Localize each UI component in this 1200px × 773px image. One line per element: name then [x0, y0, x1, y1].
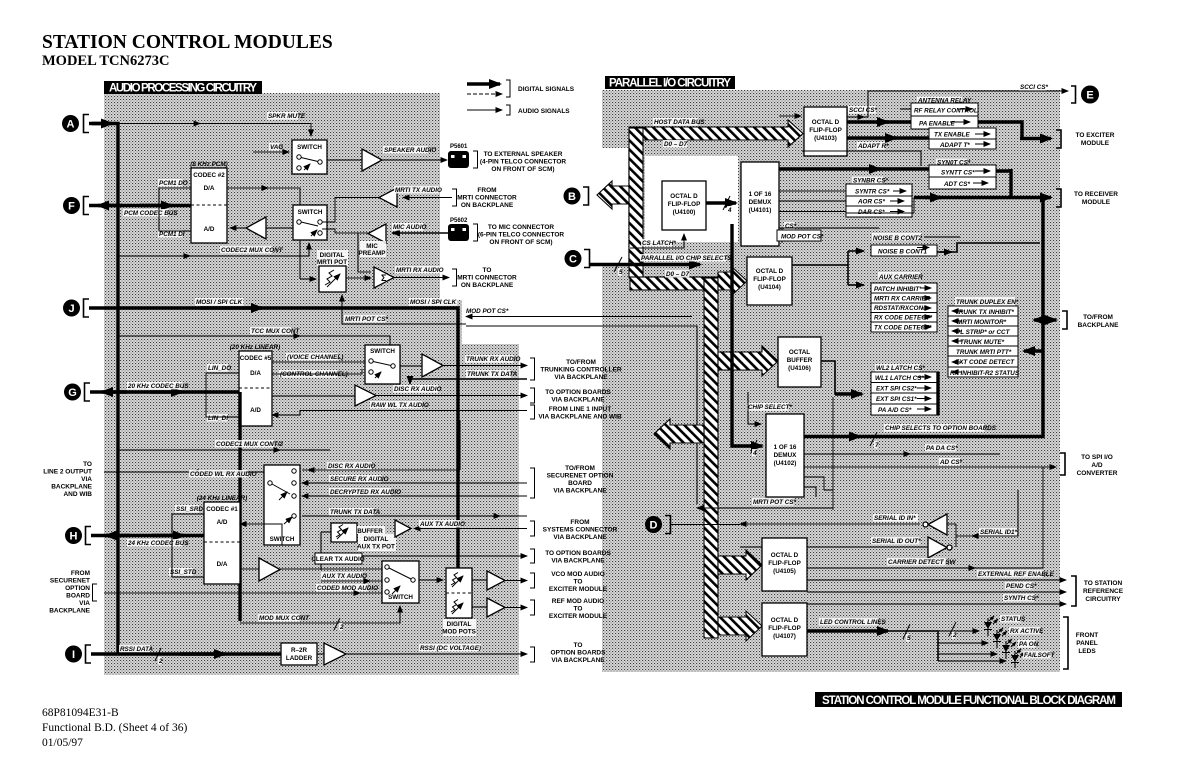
- svg-text:SPEAKER AUDIO: SPEAKER AUDIO: [384, 147, 436, 154]
- svg-text:SYNTR CS*: SYNTR CS*: [855, 189, 890, 196]
- svg-text:RDSTAT/RXCON1: RDSTAT/RXCON1: [874, 305, 927, 312]
- svg-text:FRONT: FRONT: [1076, 632, 1098, 639]
- svg-text:A: A: [67, 119, 75, 131]
- svg-text:MODULE: MODULE: [1081, 140, 1110, 147]
- svg-text:D: D: [650, 520, 658, 532]
- svg-text:TRUNKING CONTROLLER: TRUNKING CONTROLLER: [540, 367, 622, 374]
- svg-text:FROM: FROM: [71, 570, 90, 577]
- svg-text:(U4105): (U4105): [773, 568, 796, 575]
- svg-text:FROM LINE 1 INPUT: FROM LINE 1 INPUT: [549, 406, 612, 413]
- svg-text:VIA BACKPLANE: VIA BACKPLANE: [551, 397, 605, 404]
- svg-text:TO: TO: [83, 461, 92, 468]
- svg-text:MOSI / SPI CLK: MOSI / SPI CLK: [196, 299, 243, 306]
- svg-text:PA ON: PA ON: [1019, 641, 1039, 648]
- svg-text:SWITCH: SWITCH: [298, 209, 323, 216]
- svg-text:(VOICE CHANNEL): (VOICE CHANNEL): [287, 354, 343, 361]
- svg-text:TX ENABLE: TX ENABLE: [934, 132, 970, 139]
- svg-text:FLIP-FLOP: FLIP-FLOP: [768, 625, 801, 632]
- svg-text:TO: TO: [574, 579, 583, 586]
- svg-text:SSI_SRD: SSI_SRD: [176, 506, 203, 513]
- svg-text:PREAMP: PREAMP: [359, 250, 386, 257]
- svg-text:B: B: [568, 191, 576, 203]
- svg-text:I: I: [72, 649, 75, 661]
- svg-text:TO: TO: [574, 642, 583, 649]
- svg-text:VIA BACKPLANE: VIA BACKPLANE: [553, 534, 607, 541]
- svg-text:SCCI CS*: SCCI CS*: [1020, 84, 1049, 91]
- svg-text:AUX TX AUDIO: AUX TX AUDIO: [321, 573, 367, 580]
- svg-text:CARRIER DETECT SW: CARRIER DETECT SW: [888, 559, 957, 566]
- svg-text:TRUNK TX DATA: TRUNK TX DATA: [467, 371, 518, 378]
- svg-text:BACKPLANE: BACKPLANE: [49, 608, 90, 615]
- svg-text:CODED MOD AUDIO: CODED MOD AUDIO: [317, 585, 378, 592]
- svg-text:VIA BACKPLANE: VIA BACKPLANE: [551, 558, 605, 565]
- svg-text:OCTAL D: OCTAL D: [771, 552, 799, 559]
- svg-text:SYNTH CS*: SYNTH CS*: [1004, 595, 1039, 602]
- svg-text:ADAPT R*: ADAPT R*: [857, 143, 889, 150]
- svg-text:SWITCH: SWITCH: [370, 348, 395, 355]
- svg-text:AUDIO PROCESSING CIRCUITRY: AUDIO PROCESSING CIRCUITRY: [109, 83, 257, 95]
- svg-text:(4-PIN TELCO CONNECTOR: (4-PIN TELCO CONNECTOR: [480, 159, 566, 166]
- svg-text:(24 KHz LINEAR): (24 KHz LINEAR): [197, 495, 247, 502]
- svg-text:CS LATCH*: CS LATCH*: [642, 240, 676, 247]
- svg-text:BACKPLANE: BACKPLANE: [1078, 322, 1119, 329]
- svg-text:OPTION: OPTION: [65, 585, 90, 592]
- svg-text:LIN_DI: LIN_DI: [208, 415, 228, 422]
- svg-text:EXCITER MODULE: EXCITER MODULE: [549, 613, 608, 620]
- svg-text:MRTI RX CARRIER: MRTI RX CARRIER: [874, 296, 931, 303]
- svg-text:A/D: A/D: [217, 519, 228, 526]
- svg-text:CODEC1 MUX CONT/2: CODEC1 MUX CONT/2: [216, 441, 283, 448]
- svg-text:01/05/97: 01/05/97: [42, 737, 83, 749]
- svg-text:FLIP-FLOP: FLIP-FLOP: [668, 201, 701, 208]
- svg-text:SPKR MUTE: SPKR MUTE: [268, 113, 306, 120]
- svg-text:AOR CS*: AOR CS*: [857, 199, 885, 206]
- svg-text:RSSI (DC VOLTAGE): RSSI (DC VOLTAGE): [420, 645, 481, 652]
- svg-text:DEMUX: DEMUX: [774, 452, 798, 459]
- svg-text:MOD MUX CONT: MOD MUX CONT: [259, 615, 310, 622]
- svg-text:BACKPLANE: BACKPLANE: [51, 484, 92, 491]
- svg-text:RX ACTIVE: RX ACTIVE: [1010, 628, 1044, 635]
- svg-text:DEMUX: DEMUX: [749, 199, 773, 206]
- svg-text:VAG: VAG: [270, 144, 283, 151]
- svg-text:CODED WL RX AUDIO: CODED WL RX AUDIO: [190, 471, 257, 478]
- svg-text:STATUS: STATUS: [1001, 616, 1026, 623]
- svg-text:MOD POT CS*: MOD POT CS*: [466, 308, 509, 315]
- svg-text:TO/FROM: TO/FROM: [1083, 314, 1113, 321]
- svg-text:EXCITER MODULE: EXCITER MODULE: [549, 586, 608, 593]
- svg-text:REFERENCE: REFERENCE: [1083, 588, 1124, 595]
- svg-text:RSSI DATA: RSSI DATA: [120, 646, 153, 653]
- svg-text:TRUNK TX INHIBIT*: TRUNK TX INHIBIT*: [955, 309, 1014, 316]
- svg-text:AUX TX AUDIO: AUX TX AUDIO: [419, 521, 465, 528]
- svg-text:5: 5: [619, 269, 623, 276]
- svg-text:7: 7: [875, 442, 879, 449]
- svg-text:MODULE: MODULE: [1082, 199, 1111, 206]
- svg-text:TO/FROM: TO/FROM: [566, 359, 596, 366]
- svg-text:BOARD: BOARD: [66, 593, 90, 600]
- svg-text:PCM1 DO: PCM1 DO: [159, 180, 188, 187]
- svg-text:TCC MUX CONT: TCC MUX CONT: [251, 328, 300, 335]
- svg-text:CODEC #2: CODEC #2: [193, 172, 225, 179]
- svg-text:PARALLEL I/O CHIP SELECTS: PARALLEL I/O CHIP SELECTS: [641, 255, 732, 262]
- svg-text:VIA BACKPLANE: VIA BACKPLANE: [554, 374, 608, 381]
- svg-text:DECRYPTED RX AUDIO: DECRYPTED RX AUDIO: [330, 489, 401, 496]
- svg-text:(6-PIN TELCO CONNECTOR: (6-PIN TELCO CONNECTOR: [478, 232, 564, 239]
- svg-text:VIA BACKPLANE: VIA BACKPLANE: [553, 488, 607, 495]
- svg-text:CIRCUITRY: CIRCUITRY: [1085, 596, 1121, 603]
- svg-text:4: 4: [727, 207, 732, 214]
- svg-text:SSI_STD: SSI_STD: [170, 569, 197, 576]
- svg-text:TRUNK RX AUDIO: TRUNK RX AUDIO: [466, 356, 520, 363]
- svg-text:PARALLEL I/O CIRCUITRY: PARALLEL I/O CIRCUITRY: [609, 78, 731, 90]
- svg-text:C: C: [569, 254, 577, 266]
- svg-text:NOISE B CONT2: NOISE B CONT2: [873, 235, 922, 242]
- svg-text:D0 – D7: D0 – D7: [664, 141, 688, 148]
- svg-text:OPTION BOARDS: OPTION BOARDS: [551, 650, 607, 657]
- svg-text:EXTERNAL REF ENABLE: EXTERNAL REF ENABLE: [978, 571, 1055, 578]
- svg-text:E: E: [1086, 90, 1093, 102]
- svg-text:(U4104): (U4104): [758, 284, 781, 291]
- svg-text:LIN_DO: LIN_DO: [208, 365, 231, 372]
- svg-text:DIGITAL: DIGITAL: [447, 621, 472, 628]
- svg-text:TO/FROM: TO/FROM: [565, 465, 595, 472]
- svg-text:20 KHz CODEC BUS: 20 KHz CODEC BUS: [127, 383, 189, 390]
- svg-text:BUFFER: BUFFER: [787, 357, 813, 364]
- svg-text:FLIP-FLOP: FLIP-FLOP: [768, 560, 801, 567]
- svg-text:(U4106): (U4106): [788, 365, 811, 372]
- svg-text:(U4100): (U4100): [673, 209, 696, 216]
- svg-text:TO STATION: TO STATION: [1084, 580, 1123, 587]
- svg-text:(U4101): (U4101): [749, 207, 772, 214]
- svg-text:TO SPI I/O: TO SPI I/O: [1081, 454, 1113, 461]
- svg-text:(U4102): (U4102): [774, 460, 797, 467]
- svg-text:PCM CODEC BUS: PCM CODEC BUS: [124, 210, 178, 217]
- svg-text:OCTAL D: OCTAL D: [771, 617, 799, 624]
- svg-text:R–2R: R–2R: [291, 647, 308, 654]
- svg-text:CS*: CS*: [785, 223, 797, 230]
- svg-text:WL1 LATCH CS*: WL1 LATCH CS*: [875, 375, 924, 382]
- svg-text:DIGITAL: DIGITAL: [320, 252, 345, 259]
- svg-text:PA DA CS*: PA DA CS*: [926, 445, 958, 452]
- svg-text:1 OF 16: 1 OF 16: [749, 191, 772, 198]
- svg-text:5: 5: [907, 635, 911, 642]
- svg-text:SECURENET: SECURENET: [50, 578, 90, 585]
- svg-text:PEND CS*: PEND CS*: [1006, 583, 1037, 590]
- svg-text:F: F: [68, 201, 75, 213]
- svg-text:TO: TO: [483, 267, 492, 274]
- svg-text:P5601: P5601: [450, 144, 468, 150]
- svg-text:SCCI CS*: SCCI CS*: [849, 107, 878, 114]
- svg-text:2: 2: [952, 632, 957, 639]
- svg-text:TO RECEIVER: TO RECEIVER: [1074, 191, 1118, 198]
- svg-text:Σ: Σ: [381, 273, 387, 283]
- svg-text:EXT SPI CS1*: EXT SPI CS1*: [876, 396, 917, 403]
- svg-text:2: 2: [158, 658, 163, 665]
- svg-text:68P81094E31-B: 68P81094E31-B: [42, 707, 119, 719]
- svg-text:H: H: [70, 531, 78, 543]
- svg-text:(20 KHz LINEAR): (20 KHz LINEAR): [230, 344, 280, 351]
- svg-text:PCM1 DI: PCM1 DI: [159, 231, 185, 238]
- svg-text:OCTAL: OCTAL: [789, 349, 810, 356]
- svg-text:CHIP SELECTS TO OPTION BOARDS: CHIP SELECTS TO OPTION BOARDS: [885, 425, 997, 432]
- svg-text:SWITCH: SWITCH: [388, 594, 413, 601]
- svg-text:TRUNK MRTI PTT*: TRUNK MRTI PTT*: [956, 349, 1012, 356]
- svg-text:VIA BACKPLANE AND WIB: VIA BACKPLANE AND WIB: [538, 414, 622, 421]
- svg-text:TRUNK MUTE*: TRUNK MUTE*: [960, 339, 1005, 346]
- svg-text:D/A: D/A: [217, 561, 228, 568]
- svg-text:SERIAL ID1*: SERIAL ID1*: [980, 529, 1018, 536]
- svg-text:MRTI MONITOR*: MRTI MONITOR*: [957, 319, 1007, 326]
- svg-text:ON BACKPLANE: ON BACKPLANE: [461, 202, 514, 209]
- svg-text:VIA BACKPLANE: VIA BACKPLANE: [551, 657, 605, 664]
- svg-text:ADAPT T*: ADAPT T*: [939, 142, 970, 149]
- svg-text:EXT CODE DETECT: EXT CODE DETECT: [955, 359, 1015, 366]
- svg-text:FROM: FROM: [477, 187, 496, 194]
- svg-text:PA A/D CS*: PA A/D CS*: [878, 407, 912, 414]
- svg-text:MOD POTS: MOD POTS: [442, 629, 476, 636]
- svg-text:FAILSOFT: FAILSOFT: [1024, 652, 1056, 659]
- svg-text:4: 4: [752, 450, 757, 457]
- svg-text:PANEL: PANEL: [1076, 640, 1098, 647]
- svg-text:EXT SPI CS2*: EXT SPI CS2*: [876, 386, 917, 393]
- svg-text:MRTI RX AUDIO: MRTI RX AUDIO: [396, 267, 444, 274]
- svg-text:(8 KHz PCM): (8 KHz PCM): [190, 161, 227, 168]
- svg-text:CODEC #1: CODEC #1: [206, 506, 238, 513]
- svg-text:TRUNK TX DATA: TRUNK TX DATA: [330, 509, 381, 516]
- svg-text:MRTI TX AUDIO: MRTI TX AUDIO: [395, 187, 442, 194]
- svg-text:CHIP SELECT*: CHIP SELECT*: [748, 404, 792, 411]
- svg-text:VCO MOD AUDIO: VCO MOD AUDIO: [551, 571, 605, 578]
- svg-text:MIC: MIC: [366, 243, 378, 250]
- svg-text:MODEL TCN6273C: MODEL TCN6273C: [42, 53, 169, 69]
- svg-text:VIA: VIA: [79, 600, 90, 607]
- svg-text:Functional B.D. (Sheet 4 of 36: Functional B.D. (Sheet 4 of 36): [42, 722, 187, 734]
- svg-text:SERIAL ID OUT*: SERIAL ID OUT*: [872, 538, 921, 545]
- svg-text:MRTI CONNECTOR: MRTI CONNECTOR: [457, 275, 517, 282]
- svg-text:FROM: FROM: [570, 519, 589, 526]
- svg-text:BUFFER: BUFFER: [357, 528, 383, 535]
- svg-text:J: J: [68, 303, 74, 315]
- svg-text:WL2 LATCH CS*: WL2 LATCH CS*: [876, 365, 925, 372]
- svg-text:AUX TX POT: AUX TX POT: [357, 544, 395, 551]
- svg-text:AUX CARRIER: AUX CARRIER: [878, 274, 923, 281]
- svg-text:ON FRONT OF SCM): ON FRONT OF SCM): [491, 166, 554, 173]
- svg-text:SERIAL ID IN*: SERIAL ID IN*: [874, 515, 916, 522]
- svg-text:AND WIB: AND WIB: [63, 491, 92, 498]
- svg-text:SECURENET OPTION: SECURENET OPTION: [547, 473, 614, 480]
- svg-text:TO OPTION BOARDS: TO OPTION BOARDS: [545, 550, 611, 557]
- svg-text:1 OF 16: 1 OF 16: [774, 444, 797, 451]
- svg-text:TO EXCITER: TO EXCITER: [1076, 132, 1115, 139]
- svg-text:MRTI POT CS*: MRTI POT CS*: [345, 316, 388, 323]
- svg-text:CODEC #5: CODEC #5: [240, 355, 272, 362]
- svg-text:OCTAL D: OCTAL D: [812, 119, 840, 126]
- svg-text:SYNTT CS*: SYNTT CS*: [941, 170, 975, 177]
- svg-text:TX CODE DETECT*: TX CODE DETECT*: [874, 325, 932, 332]
- svg-text:LEDS: LEDS: [1078, 648, 1096, 655]
- svg-text:D0 – D7: D0 – D7: [666, 271, 690, 278]
- svg-text:CODEC2 MUX CONT: CODEC2 MUX CONT: [221, 247, 284, 254]
- svg-text:DISC RX AUDIO: DISC RX AUDIO: [394, 386, 441, 393]
- svg-text:(U4107): (U4107): [773, 633, 796, 640]
- svg-text:A/D: A/D: [1091, 462, 1103, 469]
- svg-text:FLIP-FLOP: FLIP-FLOP: [753, 276, 786, 283]
- svg-text:REF MOD AUDIO: REF MOD AUDIO: [552, 598, 604, 605]
- svg-text:FLIP-FLOP: FLIP-FLOP: [809, 127, 842, 134]
- svg-text:D/A: D/A: [250, 370, 261, 377]
- svg-text:TRUNK DUPLEX EN*: TRUNK DUPLEX EN*: [956, 299, 1019, 306]
- svg-text:MRTI POT CS*: MRTI POT CS*: [753, 499, 796, 506]
- svg-text:A/D: A/D: [250, 407, 261, 414]
- svg-text:NOISE B CONT1: NOISE B CONT1: [878, 249, 927, 256]
- svg-text:MRTI CONNECTOR: MRTI CONNECTOR: [457, 195, 517, 202]
- svg-text:OCTAL D: OCTAL D: [670, 193, 698, 200]
- svg-text:DIGITAL: DIGITAL: [364, 536, 389, 543]
- svg-text:(U4103): (U4103): [814, 135, 837, 142]
- svg-text:MOD POT CS*: MOD POT CS*: [781, 234, 824, 241]
- svg-text:D/A: D/A: [204, 185, 215, 192]
- svg-text:ADT CS*: ADT CS*: [943, 181, 970, 188]
- svg-text:MIC AUDIO: MIC AUDIO: [393, 224, 426, 231]
- svg-text:DISC RX AUDIO: DISC RX AUDIO: [328, 463, 375, 470]
- svg-text:AD CS*: AD CS*: [939, 459, 963, 466]
- svg-text:VIA: VIA: [81, 476, 92, 483]
- svg-text:G: G: [68, 387, 77, 399]
- svg-text:SECURE RX AUDIO: SECURE RX AUDIO: [330, 476, 389, 483]
- svg-text:CONVERTER: CONVERTER: [1077, 470, 1118, 477]
- svg-text:RX CODE DETECT*: RX CODE DETECT*: [874, 315, 933, 322]
- svg-text:24 KHz CODEC BUS: 24 KHz CODEC BUS: [127, 540, 189, 547]
- svg-text:TO: TO: [574, 606, 583, 613]
- svg-text:LINE 2 OUTPUT: LINE 2 OUTPUT: [43, 469, 92, 476]
- svg-text:RX INHIBIT-R2 STATUS: RX INHIBIT-R2 STATUS: [950, 370, 1020, 377]
- svg-text:DIGITAL SIGNALS: DIGITAL SIGNALS: [518, 86, 575, 93]
- svg-text:SWITCH: SWITCH: [297, 144, 322, 151]
- svg-text:LED CONTROL LINES: LED CONTROL LINES: [820, 619, 886, 626]
- svg-text:SYSTEMS CONNECTOR: SYSTEMS CONNECTOR: [543, 527, 618, 534]
- svg-text:STATION CONTROL MODULE FUNCTIO: STATION CONTROL MODULE FUNCTIONAL BLOCK …: [822, 695, 1116, 707]
- svg-text:OCTAL D: OCTAL D: [756, 268, 784, 275]
- svg-text:TO OPTION BOARDS: TO OPTION BOARDS: [545, 389, 611, 396]
- svg-text:MRTI POT: MRTI POT: [317, 259, 347, 266]
- svg-text:MOSI / SPI CLK: MOSI / SPI CLK: [410, 299, 457, 306]
- svg-text:SYNBR CS*: SYNBR CS*: [853, 178, 889, 185]
- svg-text:PL STRIP* or CCT: PL STRIP* or CCT: [956, 329, 1011, 336]
- svg-text:TO EXTERNAL SPEAKER: TO EXTERNAL SPEAKER: [484, 151, 563, 158]
- svg-text:HOST DATA BUS: HOST DATA BUS: [654, 119, 705, 126]
- svg-text:AUDIO SIGNALS: AUDIO SIGNALS: [518, 108, 570, 115]
- svg-text:2: 2: [339, 624, 344, 631]
- svg-text:A/D: A/D: [204, 226, 215, 233]
- svg-text:ON BACKPLANE: ON BACKPLANE: [461, 282, 514, 289]
- svg-text:P5602: P5602: [450, 218, 468, 224]
- svg-text:ON FRONT OF SCM): ON FRONT OF SCM): [489, 239, 552, 246]
- svg-text:LADDER: LADDER: [286, 655, 313, 662]
- svg-text:TO MIC CONNECTOR: TO MIC CONNECTOR: [488, 224, 555, 231]
- svg-text:STATION CONTROL MODULES: STATION CONTROL MODULES: [42, 32, 333, 53]
- svg-text:CLEAR TX AUDIO: CLEAR TX AUDIO: [311, 556, 364, 563]
- svg-text:RAW WL TX AUDIO: RAW WL TX AUDIO: [371, 402, 429, 409]
- svg-text:PATCH INHIBIT*: PATCH INHIBIT*: [874, 286, 922, 293]
- svg-text:BOARD: BOARD: [568, 480, 592, 487]
